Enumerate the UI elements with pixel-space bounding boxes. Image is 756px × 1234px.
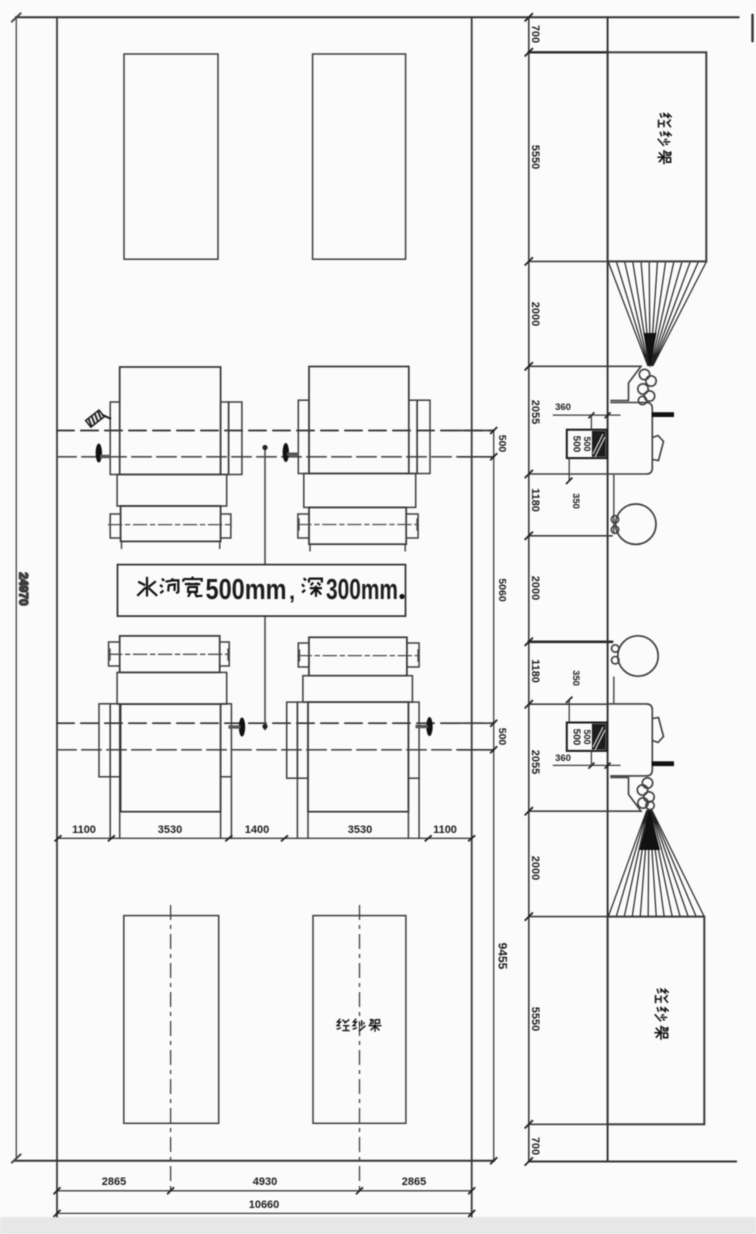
svg-text:500: 500 bbox=[496, 435, 508, 453]
svg-text:300mm: 300mm bbox=[326, 574, 398, 606]
svg-text:350: 350 bbox=[570, 493, 581, 509]
svg-text:5550: 5550 bbox=[529, 145, 541, 169]
svg-text:10660: 10660 bbox=[249, 1199, 280, 1211]
svg-text:500: 500 bbox=[582, 729, 592, 744]
svg-text:2000: 2000 bbox=[529, 856, 541, 880]
svg-text:1180: 1180 bbox=[529, 488, 541, 512]
svg-text:360: 360 bbox=[555, 402, 571, 413]
svg-text:2865: 2865 bbox=[102, 1176, 126, 1188]
svg-text:1180: 1180 bbox=[529, 659, 541, 683]
svg-text:2000: 2000 bbox=[529, 302, 541, 326]
svg-text:2055: 2055 bbox=[529, 750, 541, 774]
svg-text:2865: 2865 bbox=[402, 1176, 426, 1188]
svg-text:2000: 2000 bbox=[529, 576, 541, 600]
svg-text:500: 500 bbox=[571, 729, 582, 746]
svg-text:500: 500 bbox=[571, 436, 582, 453]
svg-text:4930: 4930 bbox=[253, 1176, 277, 1188]
svg-text:700: 700 bbox=[529, 1137, 541, 1155]
svg-text:5060: 5060 bbox=[496, 578, 508, 602]
svg-text:500: 500 bbox=[496, 728, 508, 746]
svg-text:700: 700 bbox=[529, 25, 541, 43]
svg-text:500: 500 bbox=[582, 436, 592, 451]
svg-text:1100: 1100 bbox=[433, 824, 457, 836]
svg-text:5550: 5550 bbox=[529, 1007, 541, 1031]
svg-text:,: , bbox=[289, 579, 295, 604]
svg-text:1400: 1400 bbox=[245, 824, 269, 836]
svg-text:9455: 9455 bbox=[496, 943, 510, 970]
svg-text:3530: 3530 bbox=[158, 824, 182, 836]
svg-text:500mm: 500mm bbox=[206, 574, 287, 606]
svg-text:350: 350 bbox=[570, 670, 581, 686]
svg-text:360: 360 bbox=[555, 753, 571, 764]
svg-text:24970: 24970 bbox=[17, 572, 31, 606]
svg-text:3530: 3530 bbox=[348, 824, 372, 836]
svg-text:1100: 1100 bbox=[72, 824, 96, 836]
svg-text:2055: 2055 bbox=[529, 400, 541, 424]
